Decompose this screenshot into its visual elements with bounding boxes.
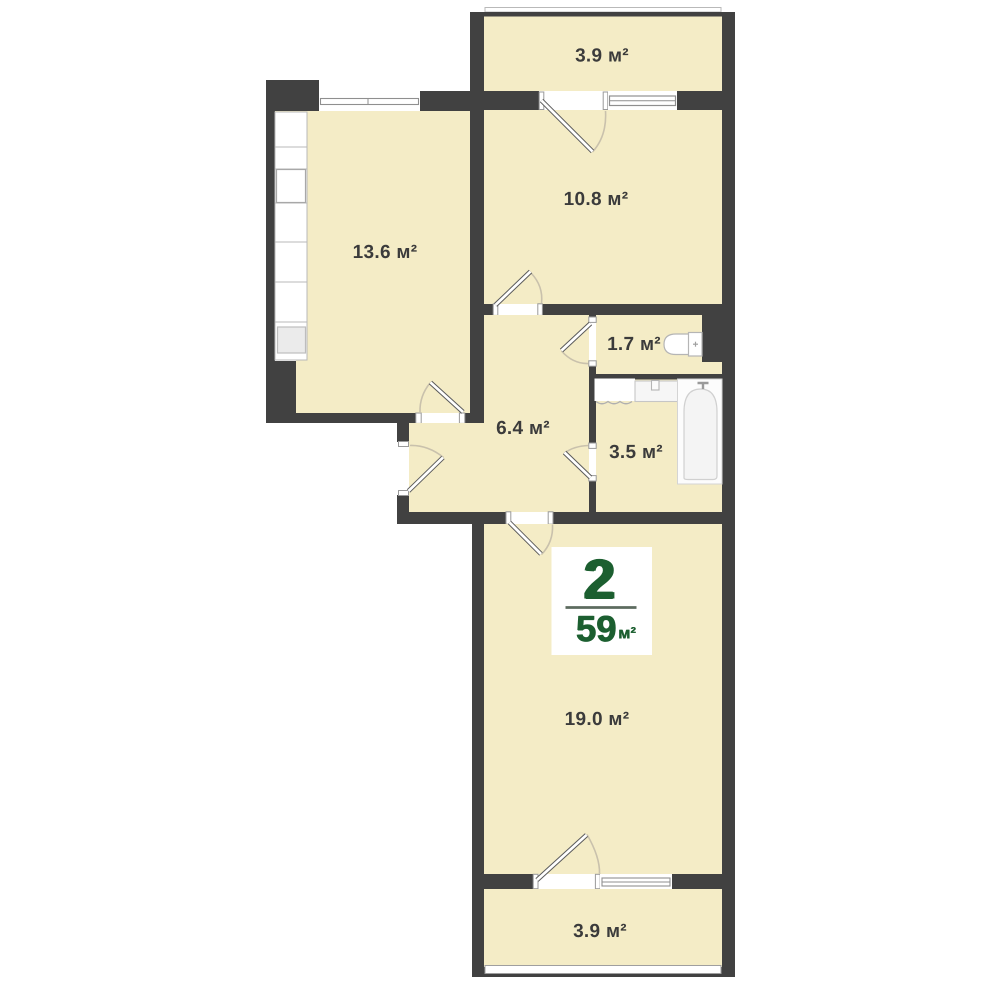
svg-text:13.6 м²: 13.6 м² [353, 242, 418, 263]
svg-text:6.4 м²: 6.4 м² [496, 418, 550, 439]
svg-text:м²: м² [619, 625, 637, 643]
svg-text:3.5 м²: 3.5 м² [609, 442, 663, 463]
svg-text:2: 2 [584, 548, 615, 611]
svg-text:3.9 м²: 3.9 м² [575, 46, 629, 67]
svg-text:1.7 м²: 1.7 м² [607, 334, 661, 355]
svg-text:3.9 м²: 3.9 м² [573, 921, 627, 942]
svg-text:19.0 м²: 19.0 м² [565, 709, 630, 730]
svg-text:59: 59 [576, 609, 617, 650]
svg-text:10.8 м²: 10.8 м² [564, 189, 629, 210]
